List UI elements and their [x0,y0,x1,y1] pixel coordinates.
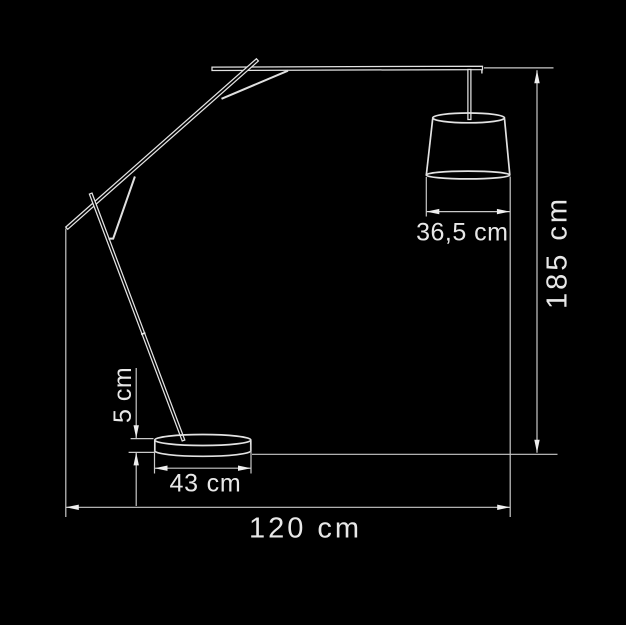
svg-text:43 cm: 43 cm [169,470,241,498]
svg-text:185 cm: 185 cm [542,196,574,309]
svg-text:5 cm: 5 cm [109,367,137,423]
svg-text:36,5 cm: 36,5 cm [416,219,508,247]
svg-text:120 cm: 120 cm [249,513,362,545]
